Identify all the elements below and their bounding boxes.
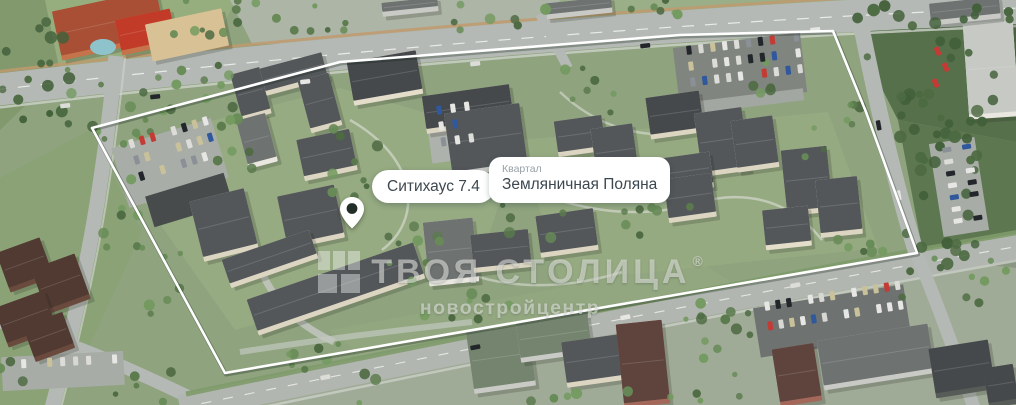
genplan-view: ТВОЯ СТОЛИЦА® новостройцентр Ситихаус 7.…: [0, 0, 1016, 405]
quarter-label[interactable]: Квартал Земляничная Поляна: [489, 157, 670, 203]
location-pin-icon: [338, 196, 366, 230]
project-label[interactable]: Ситихаус 7.4: [372, 170, 495, 203]
location-pin[interactable]: [338, 196, 366, 230]
quarter-title: Земляничная Поляна: [502, 176, 657, 195]
quarter-kicker: Квартал: [502, 163, 542, 175]
